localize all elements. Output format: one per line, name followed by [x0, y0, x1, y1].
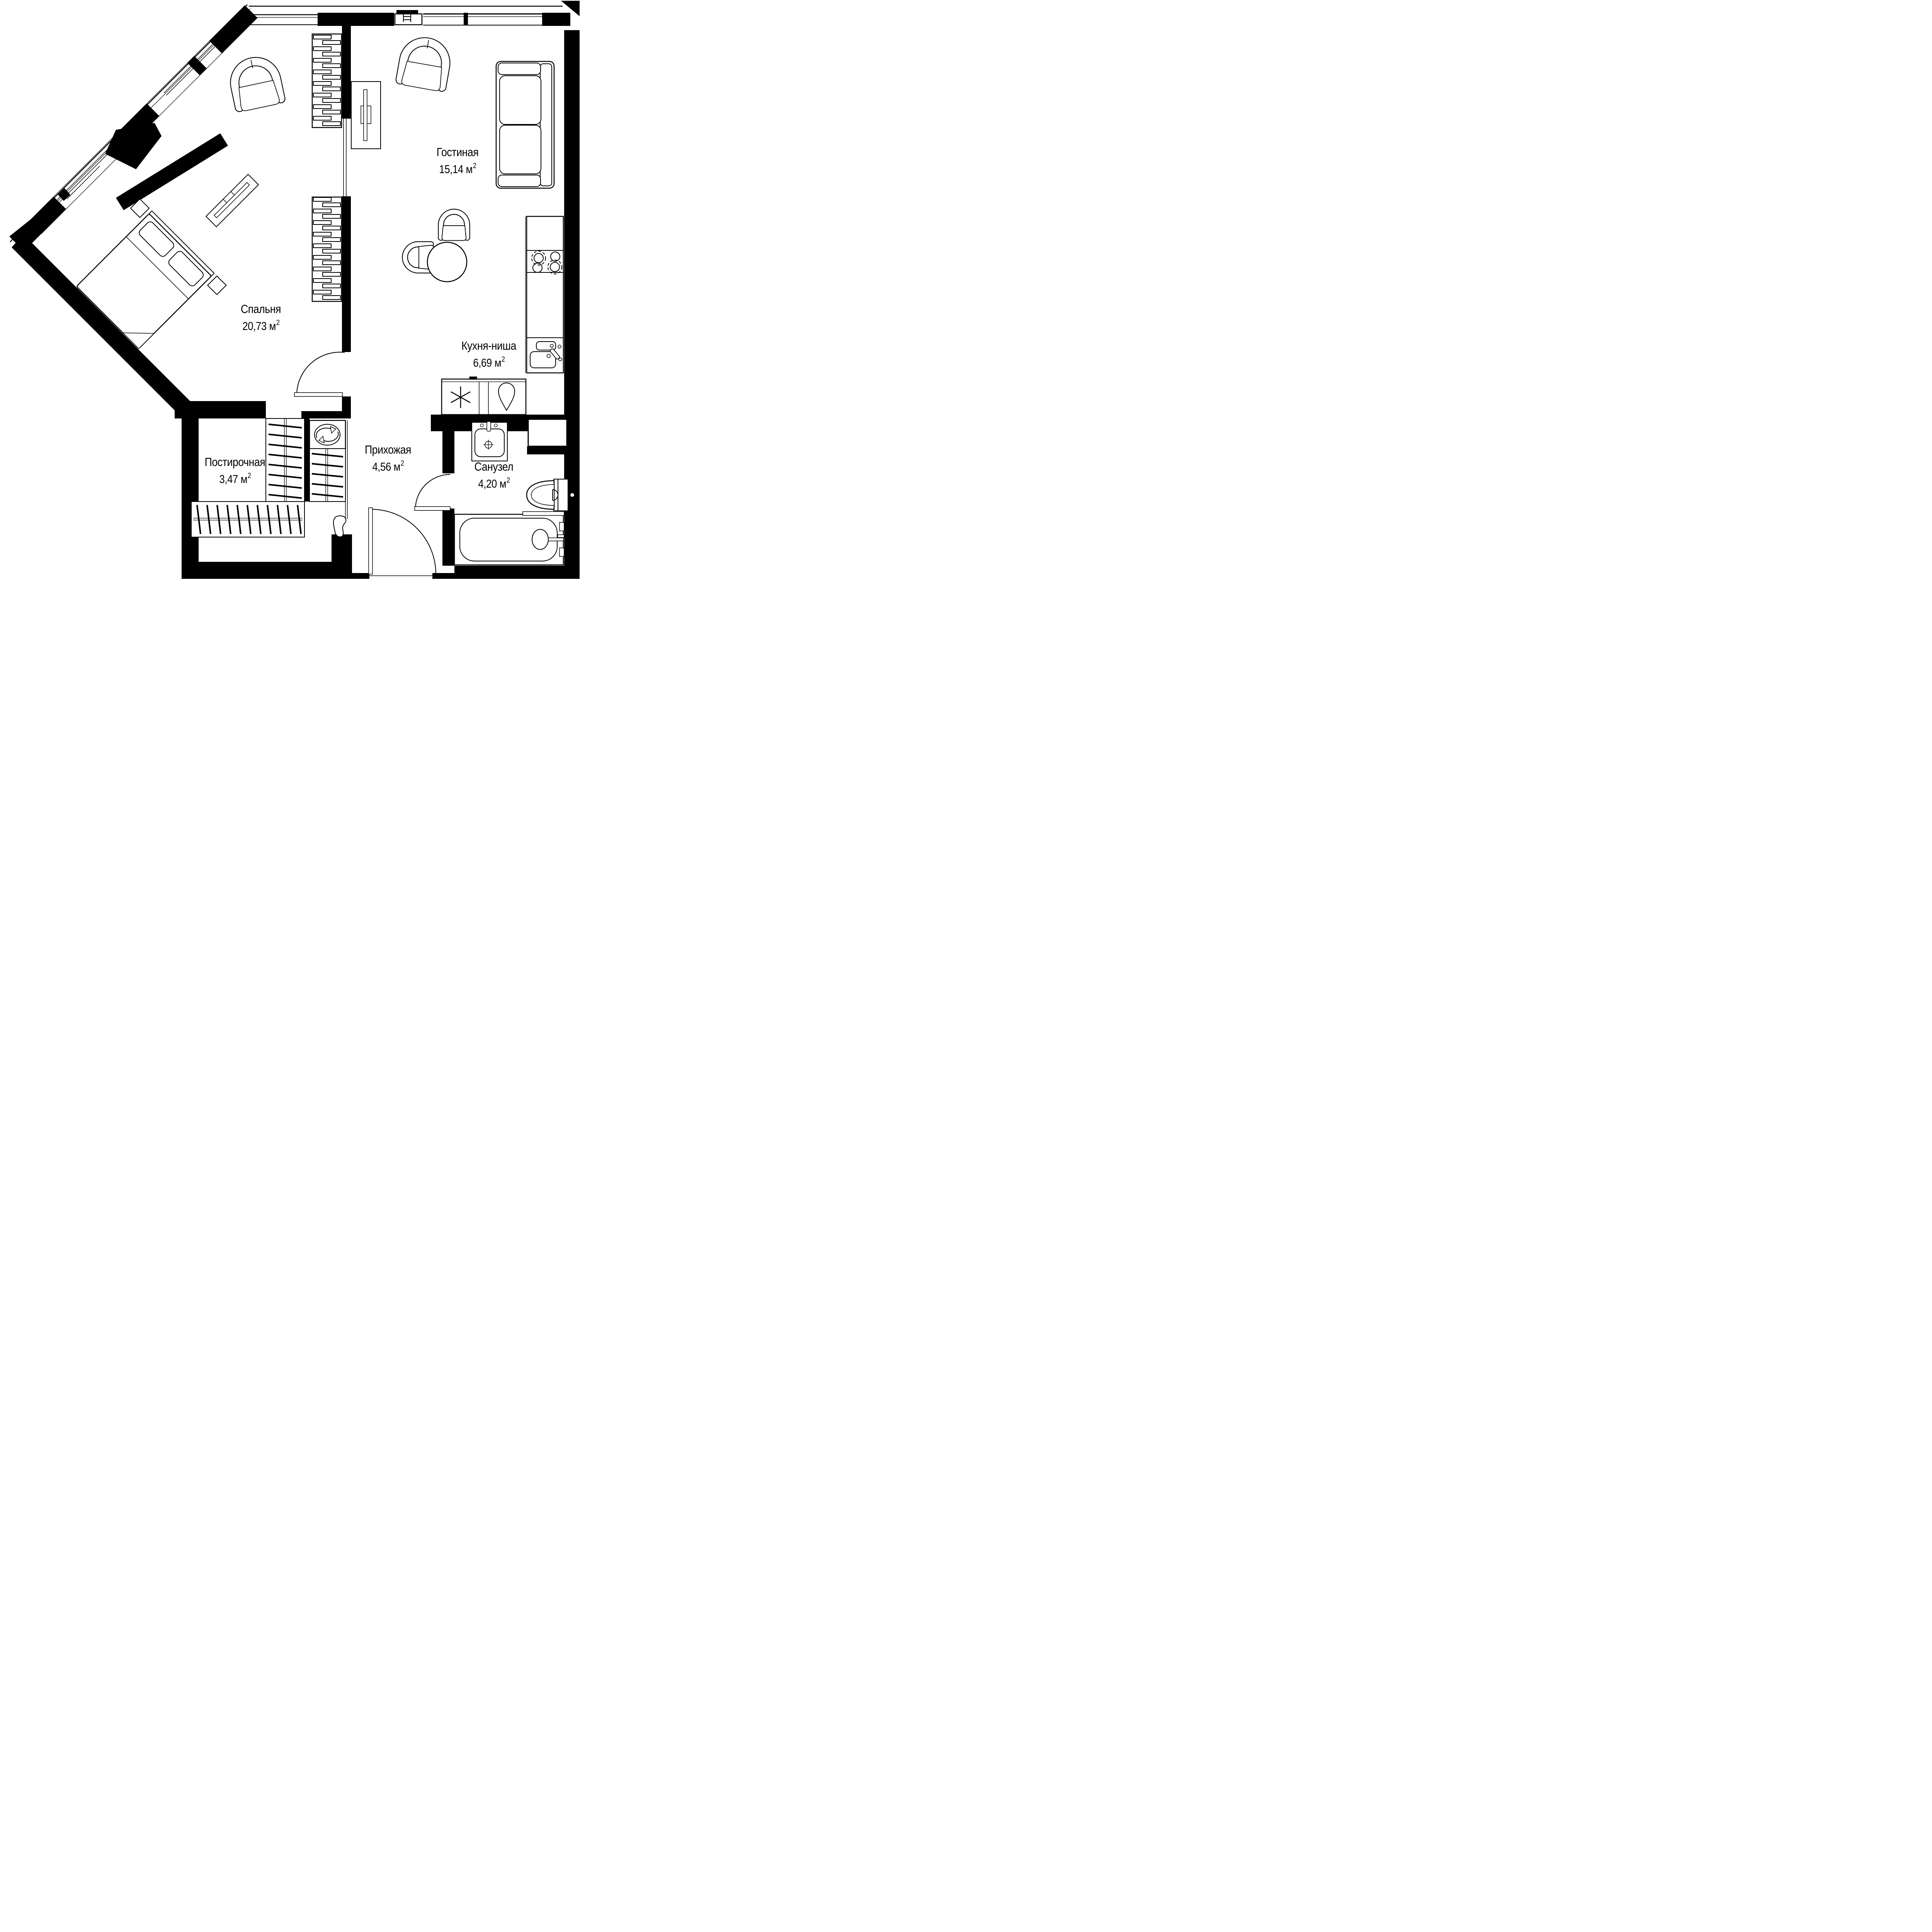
- sink-basin-large: [530, 352, 556, 368]
- bathtub-icon: [454, 512, 564, 565]
- bedroom-door-arc: [297, 352, 345, 393]
- entrance-door-leaf: [369, 508, 372, 574]
- kitchen-unit: [442, 216, 563, 415]
- floor-plan: Гостиная 15,14м2 Спальня 20,73м2 Кухня-н…: [0, 0, 580, 579]
- tv-panel: [364, 90, 367, 141]
- wall-bottom-door-right: [432, 573, 454, 579]
- sofa-back: [540, 64, 552, 186]
- room-name: Прихожая: [364, 444, 411, 456]
- wall-bedroom-south: [301, 411, 351, 418]
- room-label-bedroom: Спальня 20,73м2: [241, 303, 281, 332]
- room-area: 4,20м2: [474, 478, 514, 490]
- dining-table-icon: [427, 242, 467, 282]
- wall-bath-west-lower: [442, 509, 454, 566]
- window-w2-glass2: [60, 145, 117, 202]
- wall-bottom-door-left: [352, 573, 369, 579]
- wall-bottom-left: [182, 562, 352, 579]
- room-label-living: Гостиная 15,14м2: [436, 146, 478, 175]
- bathtub-drain: [532, 529, 548, 549]
- bath-sink-icon: [472, 422, 507, 461]
- pylon-column: [105, 123, 162, 169]
- dresser-mirror: [214, 182, 249, 218]
- tv-console-icon: [351, 82, 381, 149]
- dining-chair-top-icon: [438, 209, 469, 240]
- wall-kitchen-bath-left: [431, 415, 472, 431]
- bathroom-door-leaf: [415, 507, 450, 510]
- wall-top-left-solid: [318, 13, 394, 26]
- bathroom-door-arc: [415, 474, 450, 509]
- bath-sink-faucet: [487, 422, 491, 431]
- sofa-icon: [496, 61, 554, 188]
- wardrobe-left-box: [266, 418, 304, 502]
- room-label-bathroom: Санузел 4,20м2: [474, 461, 514, 490]
- wall-bath-west-upper: [442, 431, 454, 473]
- bath-shaft-box: [528, 419, 567, 446]
- room-label-kitchen: Кухня-ниша 6,69м2: [461, 340, 516, 369]
- room-area: 6,69м2: [461, 357, 516, 369]
- counter-handle: [469, 377, 477, 379]
- bed-icon: [65, 199, 226, 361]
- room-name: Спальня: [241, 303, 281, 315]
- window-w2-glass1: [57, 143, 114, 200]
- toilet-button: [570, 493, 575, 497]
- window-w1-glass2: [166, 47, 215, 95]
- faucet-knob-1: [558, 345, 561, 348]
- shelf-unit-icon-2: [312, 197, 342, 301]
- bath-sink-knob1: [480, 424, 483, 427]
- sink-drain-large: [547, 354, 551, 358]
- room-name: Кухня-ниша: [461, 340, 516, 352]
- room-area: 3,47м2: [204, 473, 265, 485]
- partition-lower: [342, 196, 351, 352]
- wardrobe-icon-bottom: [191, 502, 304, 537]
- room-name: Санузел: [474, 461, 514, 473]
- window-mullion: [464, 13, 468, 25]
- room-area: 15,14м2: [436, 163, 478, 175]
- entrance-door-arc: [372, 509, 436, 573]
- bathtub-tap2: [560, 548, 564, 556]
- wall-kitchen-bath-mid: [507, 415, 528, 431]
- bedroom-door-leaf: [294, 393, 342, 396]
- wardrobe-icon-mid: [310, 449, 345, 502]
- wardrobe-icon-left: [266, 418, 304, 502]
- armchair-living-icon: [395, 34, 454, 92]
- floor-plan-svg: [0, 0, 580, 579]
- wall-top-right-solid: [542, 13, 570, 26]
- window-w2-frame: [67, 166, 100, 199]
- boot-icon: [333, 516, 346, 537]
- toilet-tank: [558, 479, 568, 511]
- armchair-bedroom-icon: [226, 53, 286, 112]
- wall-shaft-bottom: [527, 446, 568, 454]
- room-label-laundry: Постирочная 3,47м2: [204, 456, 265, 485]
- sofa-seat-1: [500, 76, 541, 124]
- wall-entry-chunk: [332, 534, 352, 579]
- room-label-hallway: Прихожая 4,56м2: [364, 444, 411, 473]
- bathtub-mixer: [558, 535, 564, 537]
- faucet-knob-2: [559, 358, 562, 361]
- sofa-armrest-top: [498, 63, 541, 75]
- room-area: 4,56м2: [364, 461, 411, 473]
- bathtub-tap1: [560, 522, 564, 531]
- room-name: Постирочная: [204, 456, 265, 468]
- room-name: Гостиная: [436, 146, 478, 158]
- partition-upper: [342, 26, 351, 119]
- toilet-icon: [527, 479, 575, 511]
- vent-shaft-cap: [396, 10, 418, 14]
- bath-sink-knob2: [494, 424, 497, 427]
- sofa-seat-2: [500, 125, 541, 174]
- nightstand-2: [207, 276, 226, 294]
- partition-door-jamb: [342, 396, 351, 413]
- wall-closet-divider: [304, 418, 310, 502]
- shelf-unit-icon-1: [312, 34, 342, 128]
- bathtub-pipe: [548, 538, 563, 541]
- wall-bathroom-bottom: [454, 566, 580, 579]
- room-area: 20,73м2: [241, 320, 281, 332]
- pier-small: [187, 56, 207, 75]
- bath-screen: [523, 512, 564, 515]
- sink-drain-small: [550, 344, 553, 347]
- sofa-armrest-bottom: [498, 175, 541, 187]
- wall-laundry-left: [182, 406, 199, 579]
- dresser-icon: [206, 174, 259, 227]
- pier-top: [209, 5, 257, 53]
- washing-machine-icon: [310, 420, 345, 449]
